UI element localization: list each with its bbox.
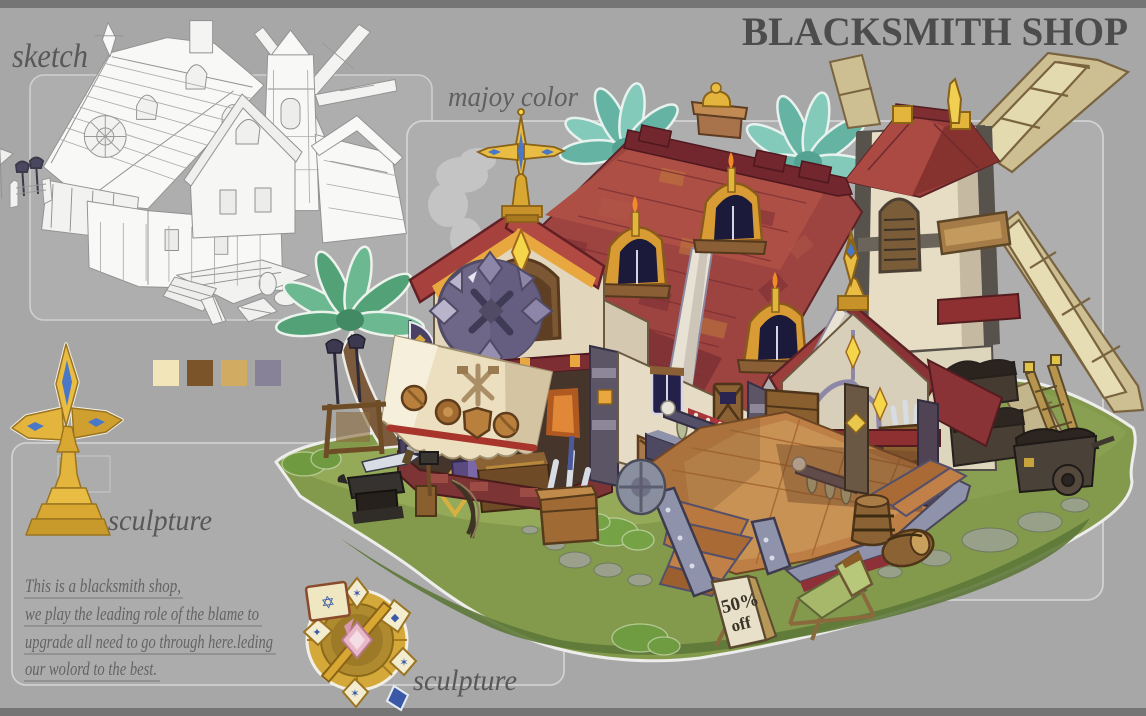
svg-text:majoy color: majoy color	[448, 82, 578, 113]
svg-text:we play the leading role of th: we play the leading role of the blame to	[25, 604, 259, 625]
svg-text:✶: ✶	[350, 688, 359, 700]
svg-text:upgrade all need to go through: upgrade all need to go through here.ledi…	[25, 632, 273, 653]
svg-text:BLACKSMITH SHOP: BLACKSMITH SHOP	[742, 9, 1128, 54]
svg-text:sculpture: sculpture	[413, 664, 517, 697]
svg-text:our wolord to the best.: our wolord to the best.	[25, 659, 157, 680]
svg-text:sculpture: sculpture	[108, 504, 212, 537]
svg-text:◆: ◆	[391, 612, 400, 624]
svg-text:✦: ✦	[312, 627, 321, 639]
svg-text:✶: ✶	[352, 588, 361, 600]
svg-text:✡: ✡	[320, 592, 337, 613]
svg-text:sketch: sketch	[12, 38, 88, 75]
svg-text:This is a blacksmith shop,: This is a blacksmith shop,	[25, 576, 181, 597]
svg-text:✶: ✶	[399, 657, 408, 669]
